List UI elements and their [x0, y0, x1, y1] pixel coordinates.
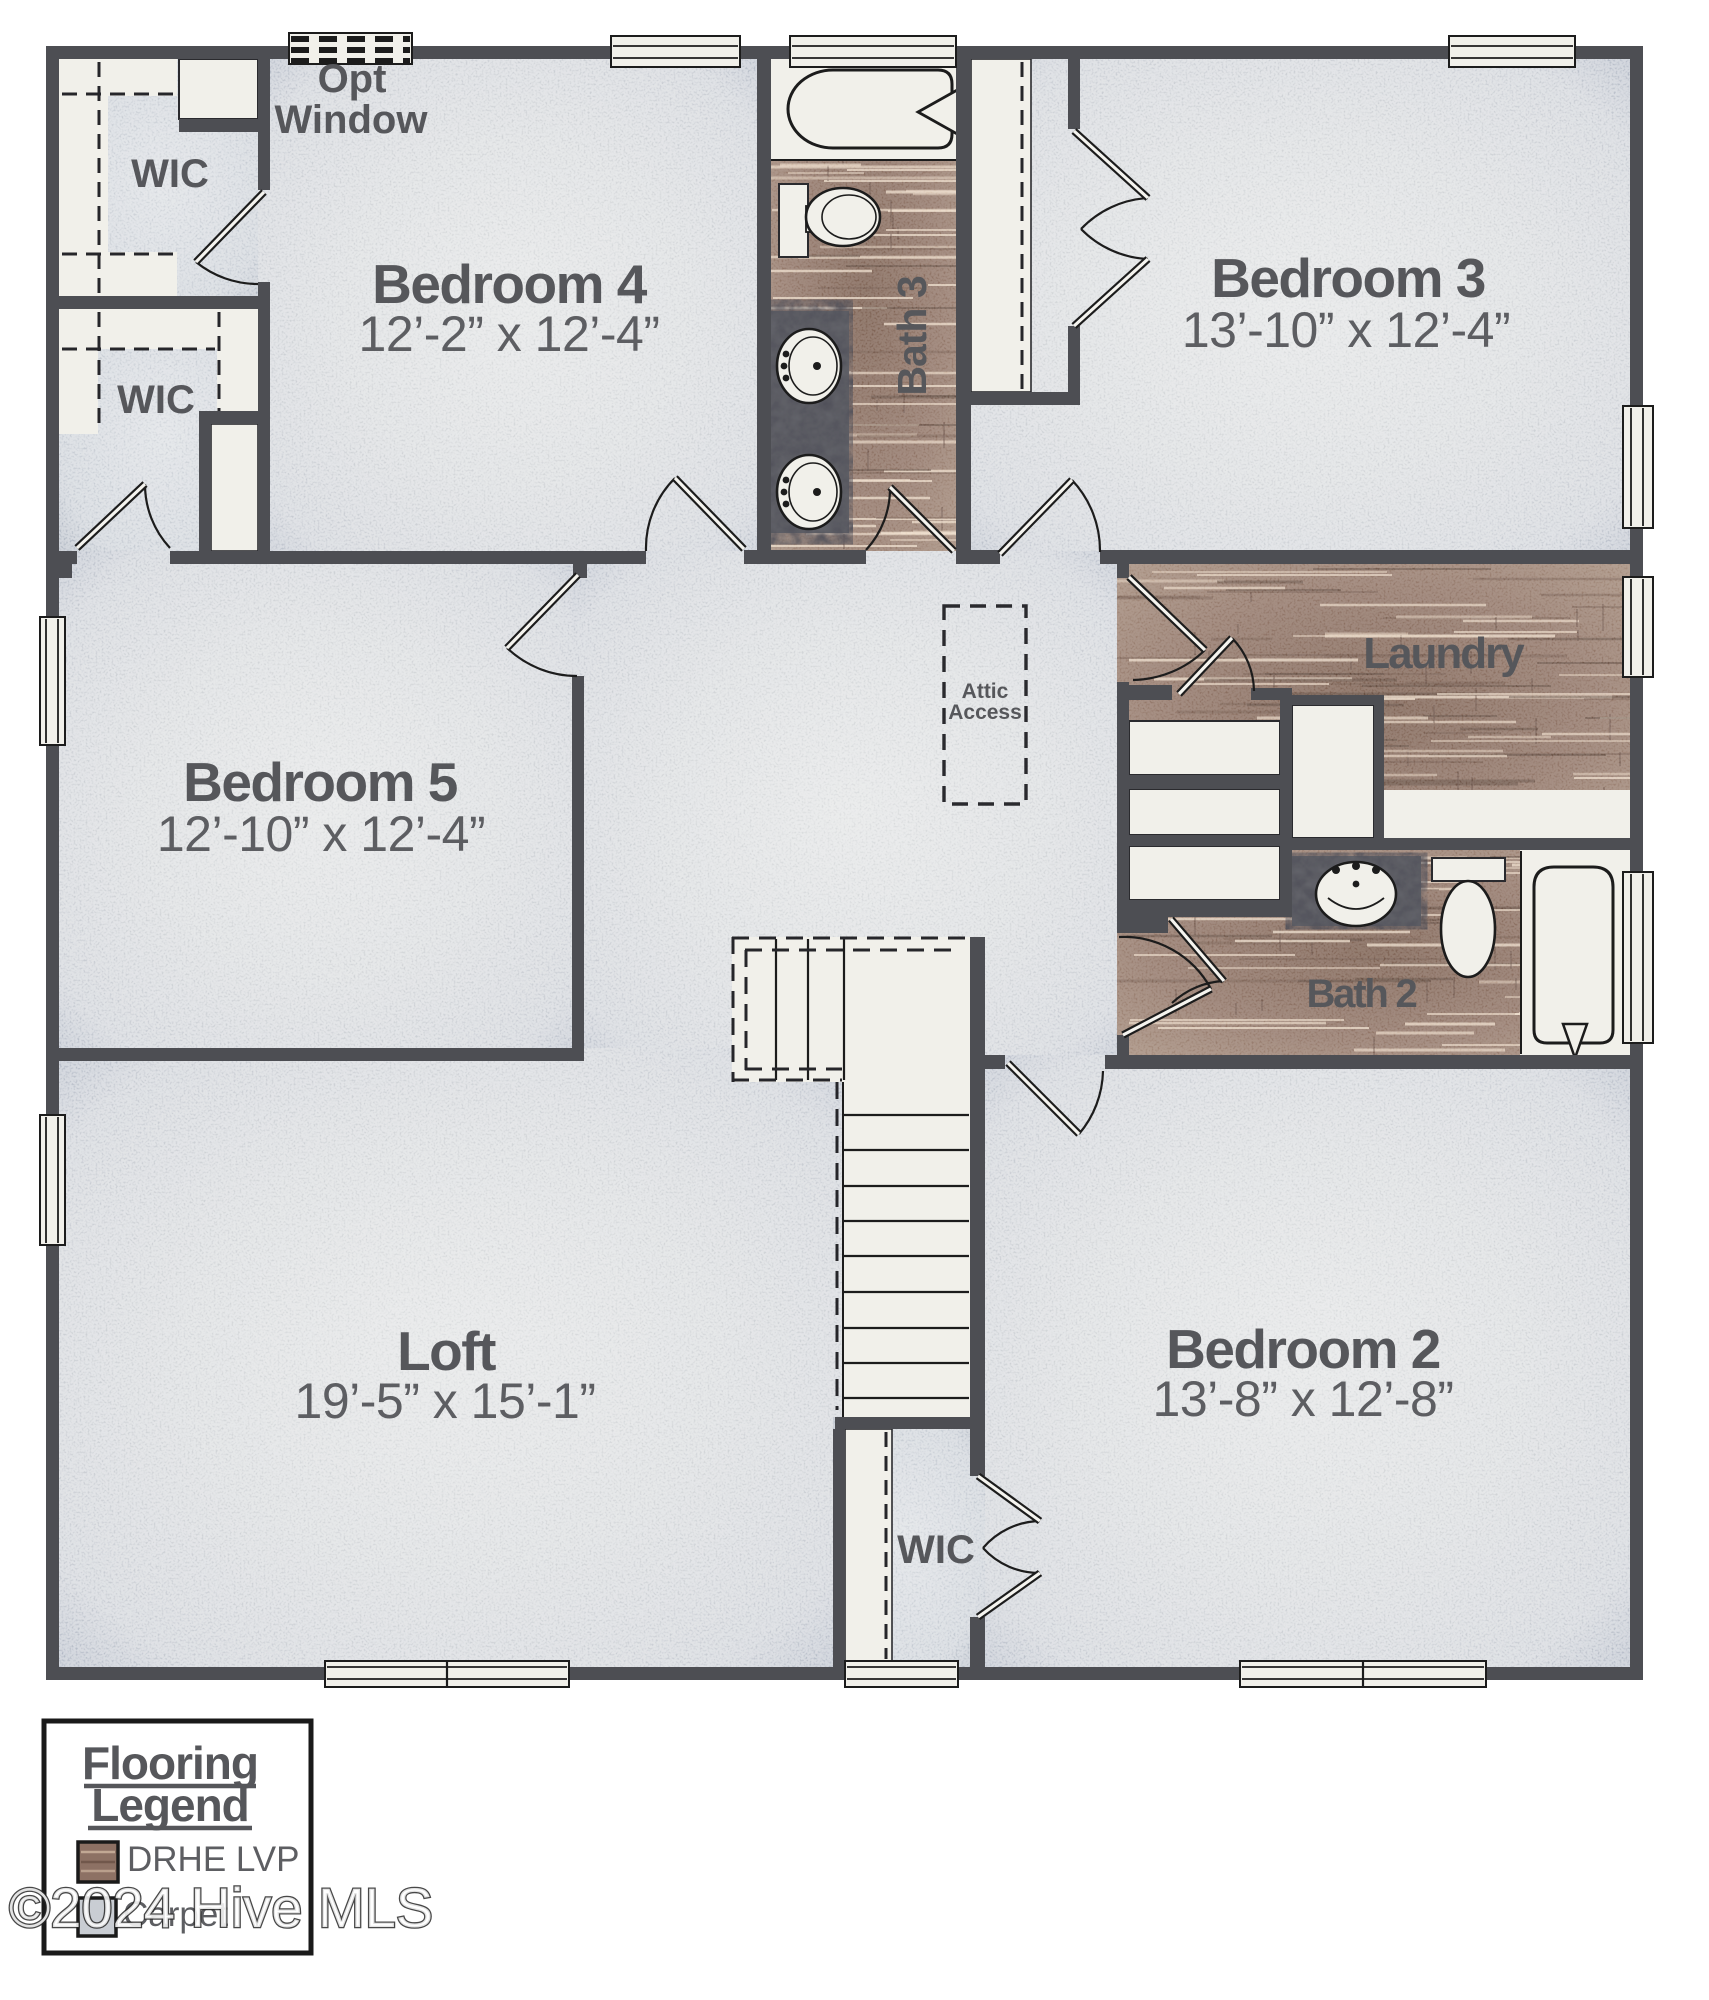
svg-text:Bath 3: Bath 3	[889, 276, 935, 396]
svg-text:Bedroom 5: Bedroom 5	[183, 751, 458, 813]
svg-text:WIC: WIC	[131, 152, 209, 196]
svg-text:19’-5” x 15’-1”: 19’-5” x 15’-1”	[295, 1373, 596, 1429]
svg-text:Bath 2: Bath 2	[1306, 972, 1416, 1016]
svg-text:©2024 Hive MLS: ©2024 Hive MLS	[9, 1876, 433, 1939]
svg-text:Bedroom 3: Bedroom 3	[1211, 247, 1485, 309]
svg-text:WIC: WIC	[897, 1528, 975, 1572]
svg-text:12’-2” x 12’-4”: 12’-2” x 12’-4”	[359, 306, 660, 362]
svg-text:Opt: Opt	[318, 57, 387, 101]
svg-text:12’-10” x 12’-4”: 12’-10” x 12’-4”	[157, 806, 485, 862]
svg-text:DRHE LVP: DRHE LVP	[127, 1840, 299, 1879]
svg-text:Laundry: Laundry	[1363, 629, 1525, 678]
svg-text:WIC: WIC	[117, 378, 195, 422]
svg-text:Legend: Legend	[91, 1779, 249, 1831]
svg-text:13’-10” x 12’-4”: 13’-10” x 12’-4”	[1182, 302, 1510, 358]
svg-text:Window: Window	[275, 98, 429, 142]
svg-text:Access: Access	[948, 701, 1022, 724]
svg-text:Attic: Attic	[962, 680, 1009, 703]
svg-text:13’-8” x 12’-8”: 13’-8” x 12’-8”	[1153, 1371, 1454, 1427]
